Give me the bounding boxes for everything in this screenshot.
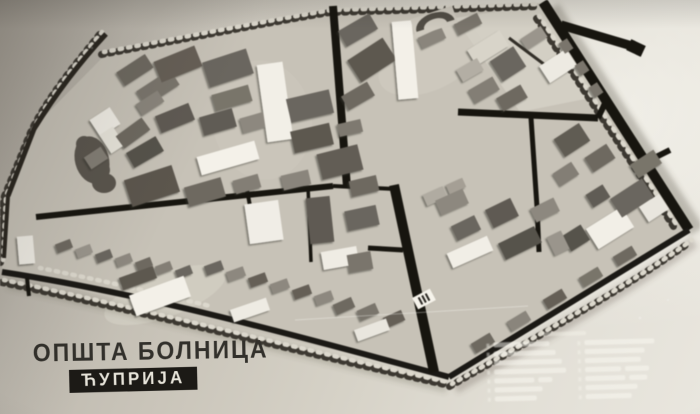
legend-columns: [486, 328, 694, 401]
model-legend: [486, 328, 694, 405]
model-caption: ОПШТА БОЛНИЦА ЋУПРИЈА: [33, 336, 270, 393]
photo-of-town-model: ОПШТА БОЛНИЦА ЋУПРИЈА: [0, 0, 700, 414]
caption-town-box: ЋУПРИЈА: [69, 367, 198, 393]
legend-column-right: [577, 338, 656, 399]
caption-title: ОПШТА БОЛНИЦА: [33, 335, 269, 368]
legend-column-left: [486, 341, 567, 402]
caption-town-name: ЋУПРИЈА: [81, 367, 185, 391]
